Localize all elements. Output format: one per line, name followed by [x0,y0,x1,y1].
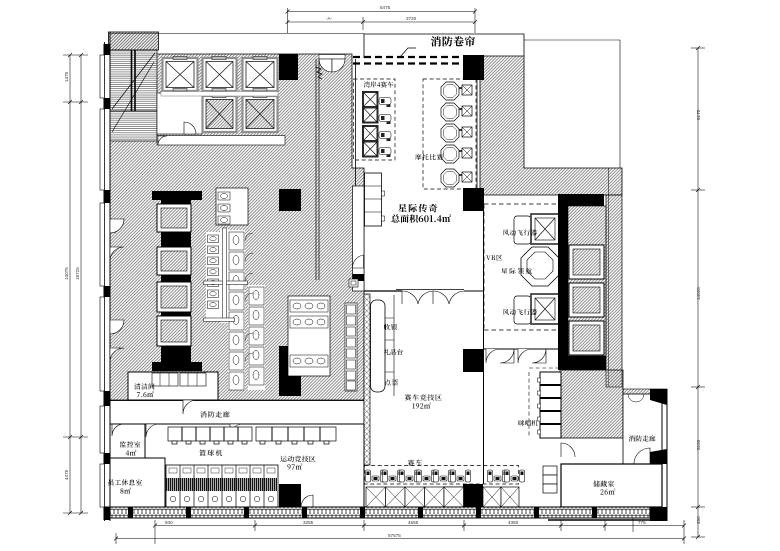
svg-text:5475: 5475 [380,5,391,10]
svg-text:775: 775 [638,520,646,525]
svg-text:3255: 3255 [303,520,314,525]
svg-text:8250: 8250 [696,439,701,450]
svg-text:18725: 18725 [75,267,80,280]
svg-text:3720: 3720 [406,16,417,21]
svg-text:4350: 4350 [508,520,519,525]
svg-text:6175: 6175 [696,109,701,120]
svg-text:14075: 14075 [64,267,69,280]
svg-text:-A-: -A- [326,16,333,21]
svg-text:1475: 1475 [64,71,69,82]
svg-text:4475: 4475 [64,469,69,480]
svg-text:450: 450 [696,516,701,524]
svg-text:57575: 57575 [388,533,401,538]
svg-text:4555: 4555 [408,520,419,525]
svg-text:940: 940 [165,520,173,525]
svg-text:14025: 14025 [696,287,701,300]
